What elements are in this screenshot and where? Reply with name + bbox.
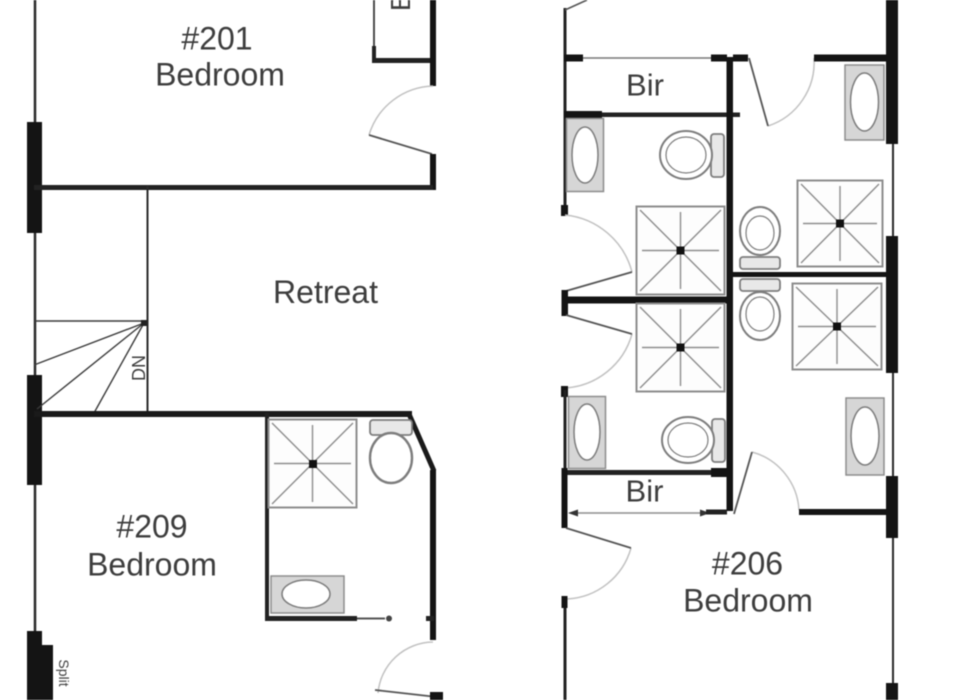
svg-text:Bir: Bir: [626, 68, 664, 103]
svg-text:Bir: Bir: [385, 0, 416, 11]
svg-text:Retreat: Retreat: [273, 274, 378, 310]
svg-text:#209: #209: [116, 509, 187, 545]
svg-text:Split: Split: [56, 659, 72, 686]
svg-text:DN: DN: [129, 355, 149, 381]
svg-text:Bedroom: Bedroom: [683, 583, 813, 619]
svg-text:#206: #206: [712, 546, 783, 582]
svg-text:Bedroom: Bedroom: [155, 57, 285, 93]
svg-text:Bedroom: Bedroom: [87, 547, 217, 583]
svg-text:Bir: Bir: [626, 474, 664, 509]
svg-text:#201: #201: [181, 21, 252, 57]
